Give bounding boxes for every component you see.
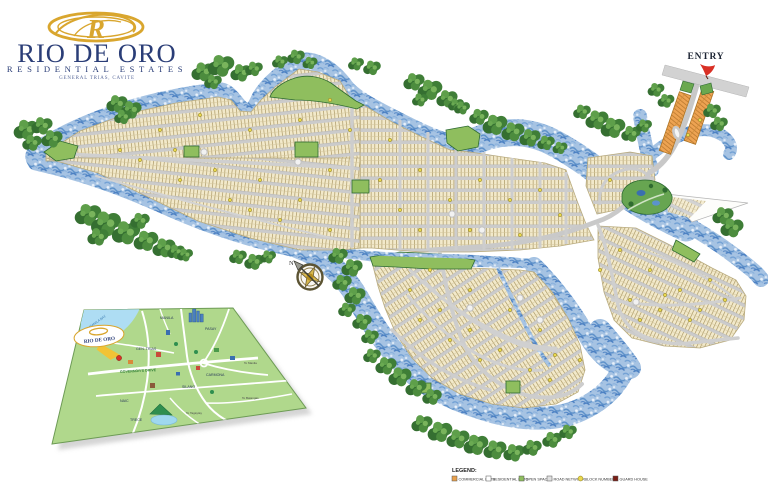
svg-text:To Tagaytay: To Tagaytay xyxy=(186,411,202,415)
svg-text:GUARD HOUSE: GUARD HOUSE xyxy=(620,478,649,482)
svg-text:NAIC: NAIC xyxy=(120,399,129,403)
svg-text:N: N xyxy=(289,260,294,267)
svg-text:ENTRY: ENTRY xyxy=(688,52,725,62)
svg-text:To Batangas: To Batangas xyxy=(242,396,259,400)
svg-text:RESIDENTIAL ESTATES: RESIDENTIAL ESTATES xyxy=(7,64,187,74)
svg-text:MANILA: MANILA xyxy=(160,316,174,320)
svg-text:To Manila: To Manila xyxy=(244,361,257,365)
svg-text:GENERAL TRIAS, CAVITE: GENERAL TRIAS, CAVITE xyxy=(59,76,135,81)
svg-text:SILANG: SILANG xyxy=(182,385,195,389)
svg-text:TRECE: TRECE xyxy=(130,418,143,422)
svg-text:PASAY: PASAY xyxy=(205,327,217,331)
svg-text:LEGEND:: LEGEND: xyxy=(452,468,477,474)
svg-text:CARMONA: CARMONA xyxy=(206,373,225,377)
svg-text:GEN. TRIAS: GEN. TRIAS xyxy=(136,347,157,351)
